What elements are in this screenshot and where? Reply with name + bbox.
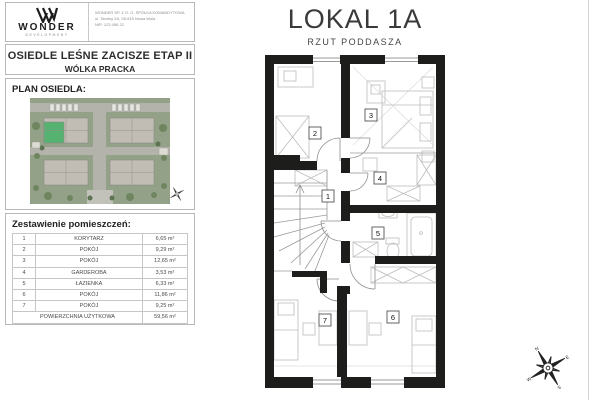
room-name-cell: POKÓJ: [36, 245, 143, 256]
room-label: 3: [369, 111, 373, 120]
room-area-cell: 6,65 m²: [143, 234, 188, 245]
page-edge-line: [588, 0, 589, 400]
staircase: [274, 170, 329, 271]
room-name-cell: POKÓJ: [36, 256, 143, 267]
room-number-cell: 6: [13, 289, 36, 300]
room-number-cell: 5: [13, 278, 36, 289]
room-area-cell: 11,86 m²: [143, 289, 188, 300]
room-number-cell: 3: [13, 256, 36, 267]
table-row: 7 POKÓJ 9,25 m²: [13, 301, 188, 312]
room-name-cell: GARDEROBA: [36, 267, 143, 278]
table-row: 2 POKÓJ 9,29 m²: [13, 245, 188, 256]
table-row: 3 POKÓJ 12,65 m²: [13, 256, 188, 267]
room-area-cell: 9,25 m²: [143, 301, 188, 312]
unit-title: LOKAL 1A: [250, 4, 460, 35]
unit-subtitle: RZUT PODDASZA: [250, 37, 460, 47]
rooms-table-box: Zestawienie pomieszczeń: 1 KORYTARZ 6,65…: [5, 213, 195, 325]
room-label: 2: [313, 129, 317, 138]
room-area-cell: 6,33 m²: [143, 278, 188, 289]
room-name-cell: ŁAZIENKA: [36, 278, 143, 289]
company-line: NIP: 123 456 22: [95, 22, 190, 28]
room-label: 4: [378, 174, 382, 183]
room-area-cell: 9,29 m²: [143, 245, 188, 256]
room-area-cell: 3,53 m²: [143, 267, 188, 278]
brand-subtitle: DEVELOPMENT: [26, 33, 69, 38]
room-name-cell: POKÓJ: [36, 289, 143, 300]
site-plan-image: [30, 98, 170, 204]
stair-arrow: [296, 185, 304, 265]
project-title-box: OSIEDLE LEŚNE ZACISZE ETAP II WÓLKA PRAC…: [5, 44, 195, 75]
compass-rose-icon: NS EW: [524, 344, 572, 392]
room-label: 5: [376, 229, 380, 238]
total-label-cell: POWIERZCHNIA UŻYTKOWA: [13, 312, 143, 323]
table-row: 1 KORYTARZ 6,65 m²: [13, 234, 188, 245]
highlighted-unit: [44, 122, 64, 143]
svg-text:N: N: [534, 346, 539, 352]
compass-rose-small-icon: [168, 185, 186, 203]
svg-text:S: S: [557, 385, 562, 391]
site-plan-box: PLAN OSIEDLA:: [5, 78, 195, 210]
project-subtitle: WÓLKA PRACKA: [6, 64, 194, 74]
room-area-cell: 12,65 m²: [143, 256, 188, 267]
total-area-cell: 59,56 m²: [143, 312, 188, 323]
table-row: 4 GARDEROBA 3,53 m²: [13, 267, 188, 278]
rooms-table: 1 KORYTARZ 6,65 m² 2 POKÓJ 9,29 m² 3 POK…: [12, 233, 188, 324]
wonder-logo-icon: [35, 7, 59, 23]
room-number-cell: 4: [13, 267, 36, 278]
room-name-cell: POKÓJ: [36, 301, 143, 312]
furniture: [274, 67, 436, 373]
table-row: 5 ŁAZIENKA 6,33 m²: [13, 278, 188, 289]
room-label: 1: [326, 192, 330, 201]
company-info: WONDER SP. Z O. O. SPÓŁKA KOMANDYTOWA ul…: [89, 3, 194, 41]
room-number-cell: 7: [13, 301, 36, 312]
room-number-cell: 1: [13, 234, 36, 245]
site-plan-label: PLAN OSIEDLA:: [12, 84, 194, 95]
table-row: 6 POKÓJ 11,86 m²: [13, 289, 188, 300]
developer-logo: WONDER DEVELOPMENT: [6, 3, 89, 41]
room-number-cell: 2: [13, 245, 36, 256]
developer-header: WONDER DEVELOPMENT WONDER SP. Z O. O. SP…: [5, 2, 195, 42]
room-label: 6: [391, 313, 395, 322]
project-title: OSIEDLE LEŚNE ZACISZE ETAP II: [6, 50, 194, 62]
svg-text:E: E: [565, 354, 570, 360]
room-name-cell: KORYTARZ: [36, 234, 143, 245]
brand-name: WONDER: [18, 23, 76, 33]
rooms-table-title: Zestawienie pomieszczeń:: [12, 219, 194, 230]
room-label: 7: [323, 316, 327, 325]
table-total-row: POWIERZCHNIA UŻYTKOWA 59,56 m²: [13, 312, 188, 323]
floor-plan: 1 2 3 4 5 6 7: [265, 55, 445, 390]
